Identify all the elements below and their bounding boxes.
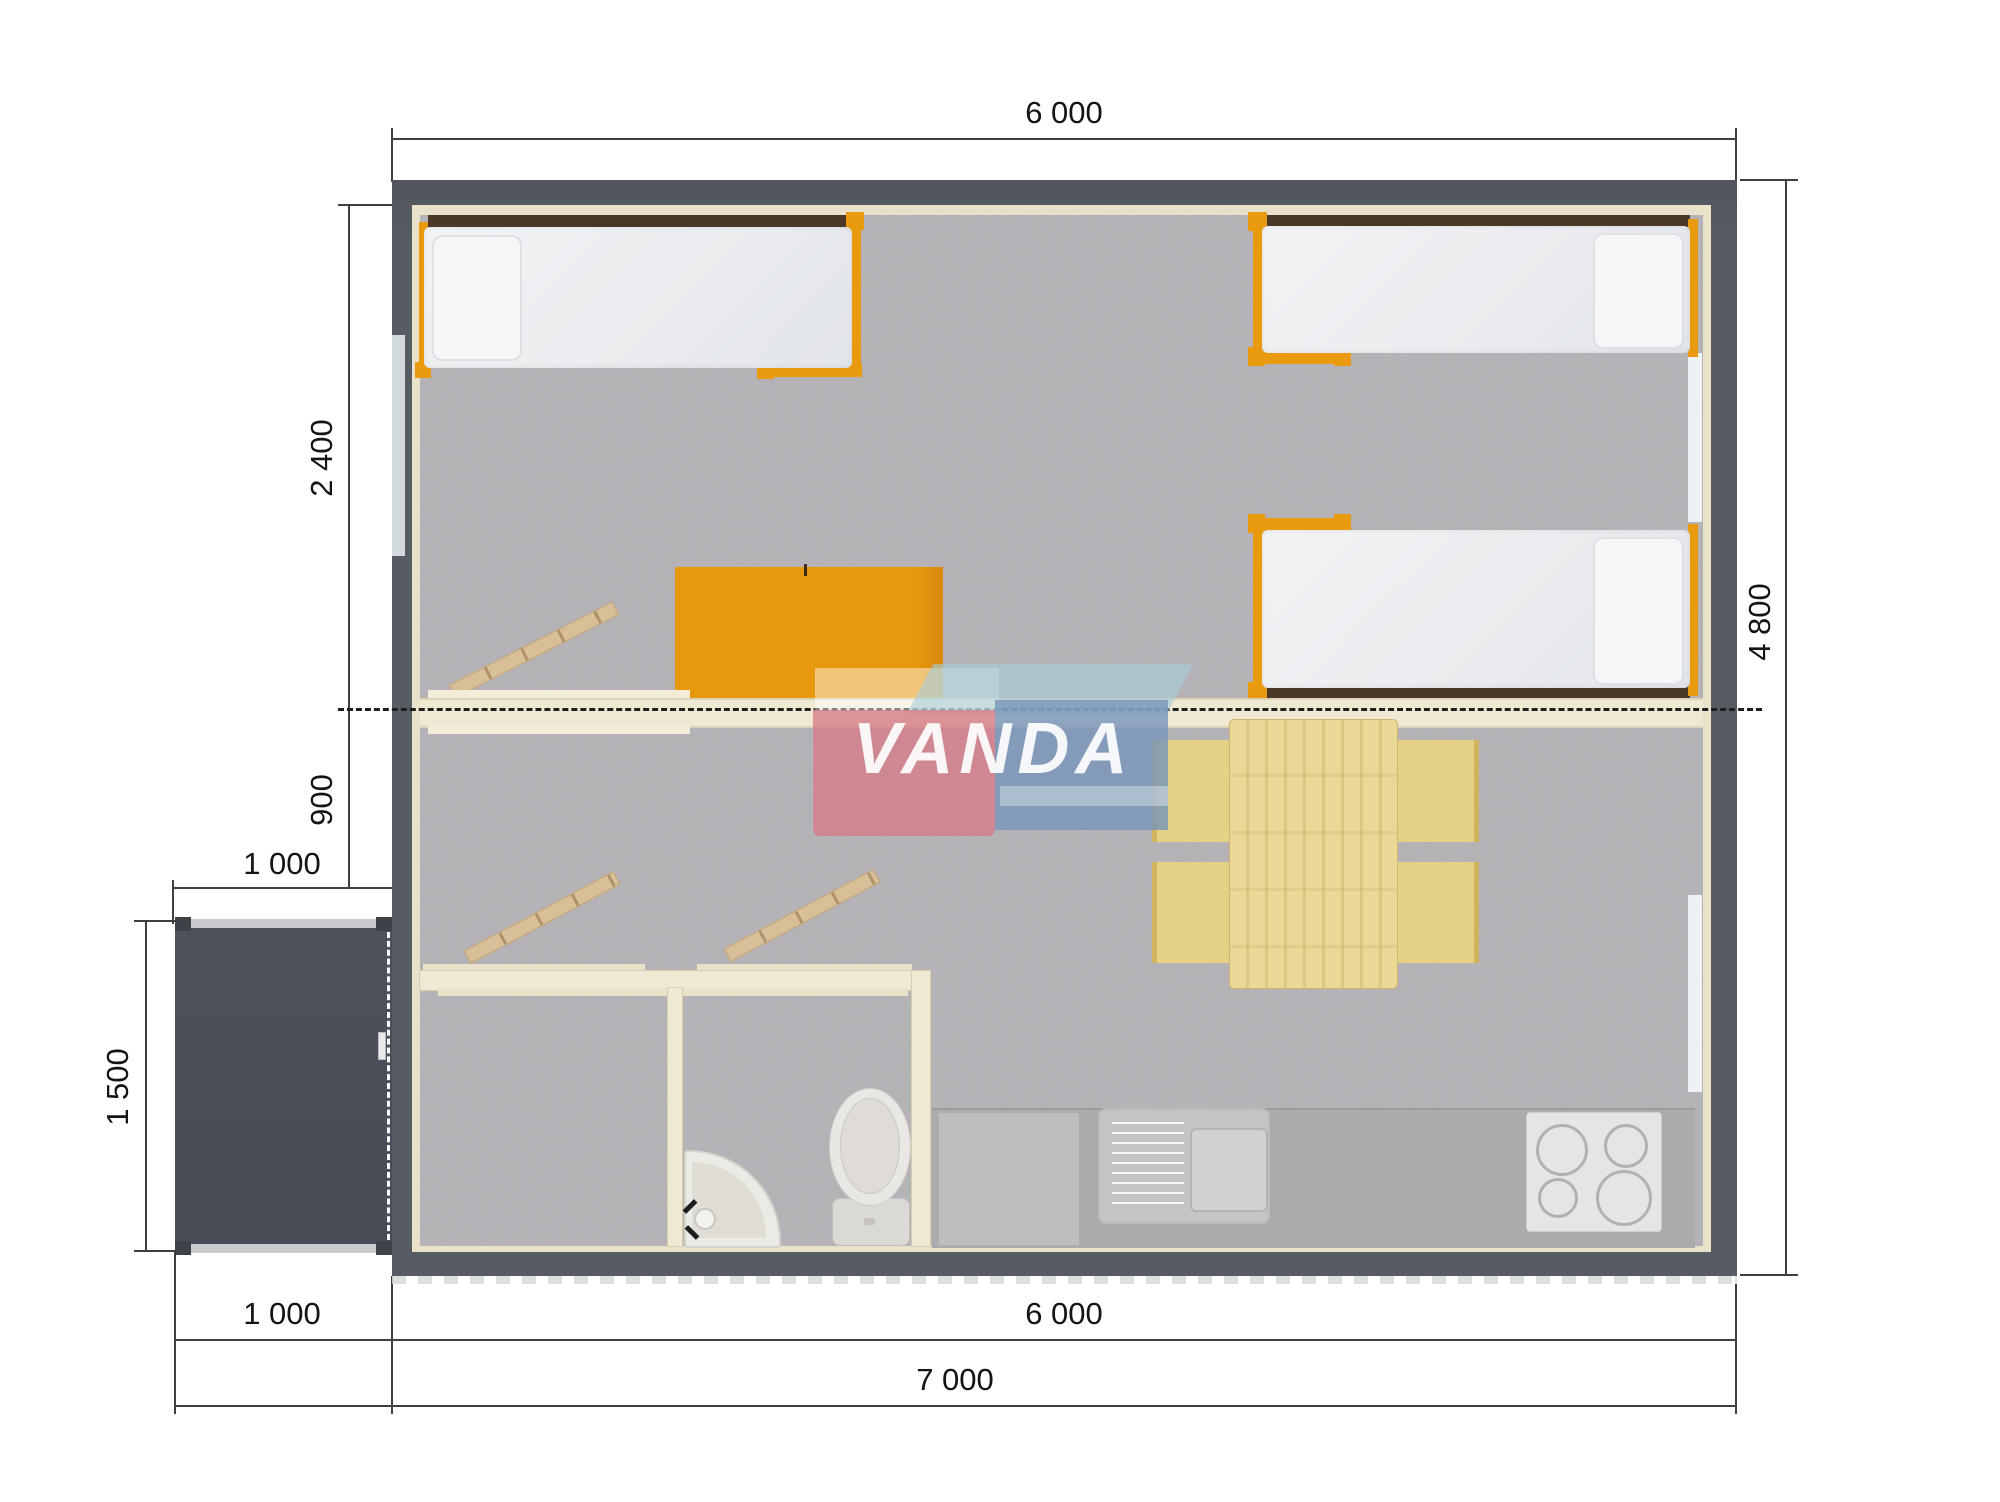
dim-line-top xyxy=(392,138,1737,140)
dim-label-bottom-total: 7 000 xyxy=(880,1363,1030,1397)
dim-line-left xyxy=(348,205,350,889)
chair-right-top xyxy=(1397,740,1479,842)
dim-label-porch-depth: 1 500 xyxy=(101,1007,135,1167)
dim-line-bottom-1 xyxy=(175,1339,1737,1341)
bed2-pillow xyxy=(1593,233,1684,349)
window-right-wall-lower xyxy=(1688,895,1702,1092)
window-right-wall-upper xyxy=(1688,353,1702,522)
kitchen-cabinet xyxy=(938,1112,1080,1246)
porch-corner-sw xyxy=(175,1241,191,1255)
partition-board-lower xyxy=(428,726,690,734)
bed3-pillow xyxy=(1593,537,1684,685)
floor-plan: 6 000 2 400 900 1 000 1 500 4 800 1 000 … xyxy=(0,0,2000,1502)
partition-board-upper xyxy=(428,690,690,698)
dim-label-right-height: 4 800 xyxy=(1743,542,1777,702)
ext-line-left-upper xyxy=(338,204,398,206)
porch-floor xyxy=(175,928,392,1244)
logo-text: VANDA xyxy=(828,708,1158,790)
dim-label-bottom-main: 6 000 xyxy=(989,1297,1139,1331)
faucet xyxy=(694,1208,716,1230)
ext-line-porch-nw xyxy=(134,920,177,922)
dim-line-porch-left xyxy=(145,922,147,1252)
ext-line-top-left xyxy=(391,128,393,182)
vanda-logo: VANDA xyxy=(810,664,1174,839)
cladding-edge-bottom xyxy=(392,1276,1737,1284)
chair-left-bottom xyxy=(1152,862,1235,963)
dim-label-porch-width-top: 1 000 xyxy=(207,847,357,881)
ext-line-right-top xyxy=(1740,179,1798,181)
dining-table xyxy=(1230,720,1397,988)
desk-mark xyxy=(804,564,807,576)
porch-corner-se xyxy=(376,1241,392,1255)
toilet-lid xyxy=(840,1098,900,1194)
ext-line-bottom-right xyxy=(1735,1276,1737,1414)
chair-right-bottom xyxy=(1397,862,1479,963)
bed1-pillow xyxy=(432,235,522,361)
dim-label-bedroom-depth: 2 400 xyxy=(305,378,339,538)
ext-line-top-right xyxy=(1735,128,1737,182)
bathroom-wall-divider xyxy=(668,988,682,1246)
stove-burner-back-right xyxy=(1596,1170,1652,1226)
porch-corner-nw xyxy=(175,917,191,931)
dim-line-bottom-2 xyxy=(175,1405,1737,1407)
stove-burner-back-left xyxy=(1538,1178,1578,1218)
kitchen-sink-basin xyxy=(1190,1128,1268,1212)
stove-burner-front-right xyxy=(1604,1124,1648,1168)
ext-line-bottom-porch xyxy=(174,1252,176,1414)
dim-line-right xyxy=(1785,180,1787,1276)
ext-line-left-mid xyxy=(173,887,398,889)
porch-bottom-step xyxy=(175,1243,392,1253)
ext-line-porch-sw xyxy=(134,1250,177,1252)
ext-line-bottom-left xyxy=(391,1276,393,1414)
bed1-frame-right xyxy=(851,216,861,376)
ext-line-right-bottom xyxy=(1740,1274,1798,1276)
kitchen-drainboard xyxy=(1112,1122,1184,1208)
window-left-wall xyxy=(392,335,405,556)
dim-label-bottom-porch: 1 000 xyxy=(207,1297,357,1331)
ext-line-porch-top xyxy=(172,880,174,924)
dim-label-top-width: 6 000 xyxy=(989,96,1139,130)
door-handle xyxy=(378,1032,386,1060)
entrance-door-line xyxy=(387,932,390,1240)
bathroom-wall-right xyxy=(912,971,930,1246)
stove-burner-front-left xyxy=(1536,1124,1588,1176)
porch-corner-ne xyxy=(376,917,392,931)
toilet-button xyxy=(864,1218,875,1225)
